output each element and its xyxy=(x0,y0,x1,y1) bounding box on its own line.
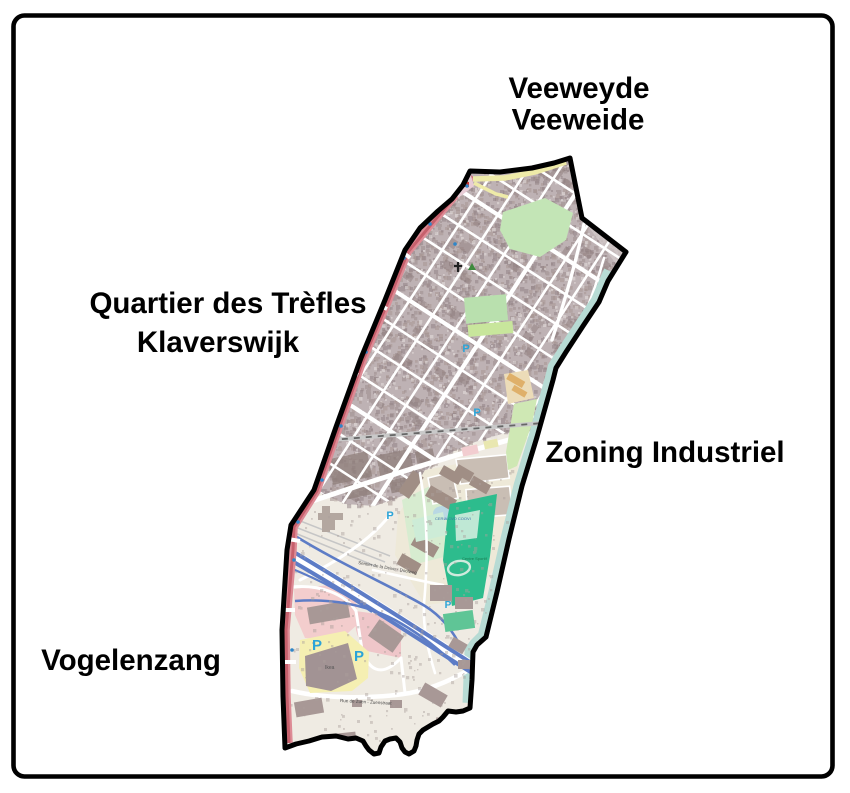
svg-text:P: P xyxy=(312,637,322,654)
svg-text:P: P xyxy=(386,510,393,522)
svg-text:Klaverswijk: Klaverswijk xyxy=(137,326,300,359)
svg-text:P: P xyxy=(462,343,469,355)
svg-text:Veeweyde: Veeweyde xyxy=(508,72,649,105)
svg-text:Zoning Industriel: Zoning Industriel xyxy=(545,436,784,469)
svg-text:Ikea: Ikea xyxy=(325,665,335,671)
svg-text:CERIA CVO COOVI: CERIA CVO COOVI xyxy=(435,516,471,521)
svg-text:P: P xyxy=(354,648,364,665)
svg-text:P: P xyxy=(473,407,480,419)
svg-text:P: P xyxy=(445,600,452,611)
svg-text:Centre Sportif: Centre Sportif xyxy=(462,556,488,561)
svg-text:Vogelenzang: Vogelenzang xyxy=(41,644,221,677)
svg-text:Quartier des Trèfles: Quartier des Trèfles xyxy=(89,287,366,320)
svg-text:Veeweide: Veeweide xyxy=(512,104,645,137)
